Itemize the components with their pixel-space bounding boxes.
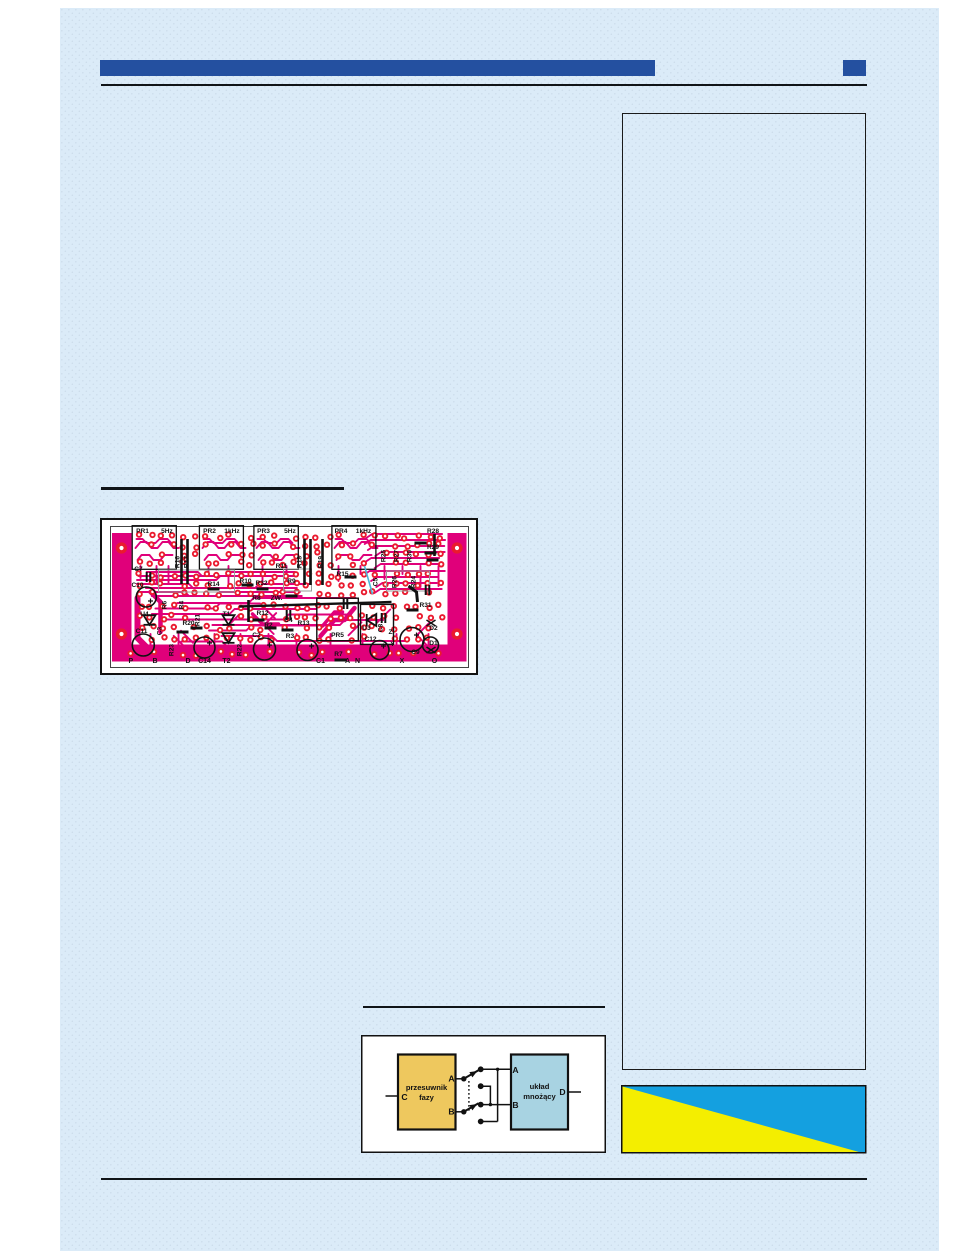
svg-text:PR5: PR5 [331,632,344,639]
svg-text:5Hz: 5Hz [284,528,296,535]
svg-text:C9: C9 [411,649,420,656]
svg-text:ZW.: ZW. [270,595,282,602]
svg-text:PR4: PR4 [334,528,347,535]
svg-text:R12: R12 [256,610,268,617]
svg-text:R23: R23 [168,644,175,656]
svg-text:B: B [512,1100,518,1110]
svg-text:R24: R24 [410,576,417,588]
svg-text:O: O [431,658,437,665]
svg-text:PR3: PR3 [257,528,270,535]
svg-text:R3: R3 [285,633,294,640]
svg-text:R2: R2 [264,622,273,629]
svg-text:D: D [185,658,190,665]
svg-text:C3: C3 [156,626,163,635]
svg-text:mnożący: mnożący [523,1092,556,1101]
svg-text:PR2: PR2 [203,528,216,535]
svg-text:R8: R8 [252,595,261,602]
svg-text:R28: R28 [426,528,438,535]
svg-text:R13: R13 [297,620,309,627]
svg-text:X: X [399,658,404,665]
svg-text:T1: T1 [222,611,230,618]
svg-text:5Hz: 5Hz [161,528,173,535]
svg-text:R11: R11 [275,563,287,570]
svg-text:U3: U3 [362,625,371,632]
svg-text:R7: R7 [334,651,343,658]
svg-text:układ: układ [530,1082,550,1091]
svg-text:A: A [512,1065,518,1075]
svg-text:R17: R17 [183,556,190,568]
svg-text:C: C [401,1092,407,1102]
svg-text:R27: R27 [393,550,400,562]
svg-text:R32: R32 [255,580,267,587]
svg-text:R18: R18 [296,556,303,568]
svg-text:Z: Z [388,629,392,636]
svg-text:R4: R4 [178,600,185,609]
svg-text:1kHz: 1kHz [355,528,371,535]
svg-text:C8: C8 [377,623,384,632]
svg-text:przesuwnik: przesuwnik [406,1083,448,1092]
svg-text:R10: R10 [239,578,251,585]
svg-text:R20: R20 [182,620,194,627]
svg-text:Y: Y [390,641,395,648]
svg-text:P: P [128,658,133,665]
svg-text:fazy: fazy [419,1093,435,1102]
svg-text:R19: R19 [317,556,324,568]
svg-text:A: A [344,658,349,665]
svg-text:R26: R26 [391,576,398,588]
svg-text:C2: C2 [252,632,261,639]
svg-text:U4: U4 [140,611,149,618]
svg-text:R30: R30 [406,550,413,562]
svg-text:1kHz: 1kHz [224,528,240,535]
svg-text:B: B [448,1106,454,1116]
svg-text:C10: C10 [131,582,143,589]
svg-text:C5: C5 [372,577,379,586]
svg-text:D2: D2 [429,625,438,632]
svg-text:A: A [448,1073,454,1083]
svg-text:C12: C12 [364,636,376,643]
svg-text:D: D [559,1087,565,1097]
svg-text:C4: C4 [284,617,293,624]
svg-text:C1: C1 [316,658,325,665]
svg-text:R29: R29 [426,544,438,551]
svg-text:R25: R25 [380,550,387,562]
svg-text:R16: R16 [174,556,181,568]
svg-text:R22: R22 [236,644,243,656]
svg-text:R6: R6 [161,600,168,609]
svg-text:R31: R31 [419,602,431,609]
svg-text:R15: R15 [336,571,348,578]
svg-text:C7: C7 [134,566,143,573]
svg-text:R9: R9 [287,578,296,585]
svg-text:T2: T2 [222,658,230,665]
svg-text:D1: D1 [429,640,438,647]
svg-text:N: N [354,658,359,665]
svg-text:C14: C14 [198,658,211,665]
svg-text:C11: C11 [135,628,147,635]
svg-text:B: B [152,658,157,665]
svg-text:R21: R21 [194,614,201,626]
svg-text:PR1: PR1 [136,528,149,535]
svg-text:R14: R14 [207,581,219,588]
